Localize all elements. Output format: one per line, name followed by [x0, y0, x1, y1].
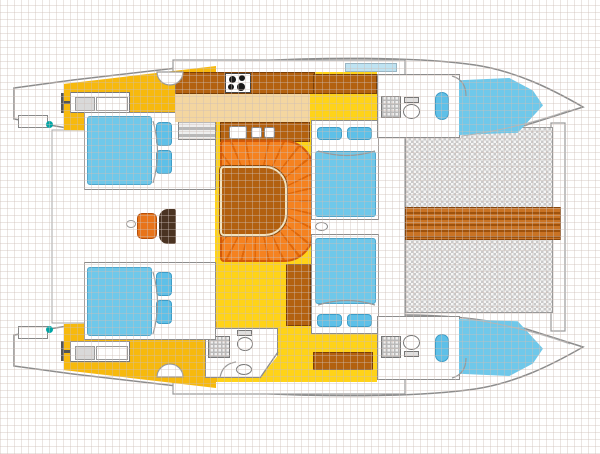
- stove-icon: [225, 73, 251, 93]
- toilet-icon-port-tank: [404, 97, 419, 103]
- shower-pan-icon-port: [381, 96, 401, 118]
- port-mid-cabin-pillow-1: [317, 127, 342, 140]
- stove-burner-3: [228, 84, 234, 90]
- starboard-mid-cabin-mattress: [315, 238, 376, 304]
- coachroof-window-strip: [345, 63, 397, 72]
- engine-hatch-starboard-panel-b: [96, 346, 128, 360]
- engine-hatch-starboard-panel-a: [75, 346, 95, 360]
- galley-sink-small-1: [251, 127, 262, 138]
- shower-pan-icon-starboard: [381, 336, 401, 358]
- starboard-mid-cabin-pillow-1: [317, 314, 342, 327]
- saloon-cabinet: [286, 264, 311, 326]
- cleat-dot-port: [46, 121, 53, 128]
- galley-sideboard: [313, 74, 377, 94]
- engine-hatch-port-panel-a: [75, 97, 95, 111]
- saloon-table: [220, 166, 287, 236]
- toilet-icon-starboard-tank: [404, 351, 419, 357]
- port-aft-cabin-mattress: [87, 116, 152, 185]
- toilet-icon-aft: [237, 337, 253, 351]
- starboard-aft-cabin-pillow-2: [156, 300, 172, 324]
- port-aft-cabin-pillow-2: [156, 150, 172, 174]
- port-aft-cabin-pillow-1: [156, 122, 172, 146]
- basin-icon-aft: [236, 364, 252, 375]
- toilet-icon-starboard: [403, 335, 420, 350]
- toilet-icon-aft-tank: [237, 330, 252, 336]
- vanity-sink-starboard: [435, 334, 449, 362]
- transom-step-starboard: [18, 326, 48, 339]
- starboard-aft-cabin-pillow-1: [156, 272, 172, 296]
- stove-burner-1: [229, 76, 236, 83]
- vanity-sink-port: [435, 92, 449, 120]
- nav-console: [159, 209, 176, 244]
- sliding-door-handle: [315, 222, 328, 231]
- toilet-icon-port: [403, 104, 420, 119]
- cockpit-door-handle: [126, 220, 136, 228]
- starboard-aft-cabin-mattress: [87, 267, 152, 336]
- starboard-bow-berth: [459, 319, 543, 376]
- port-mid-cabin-pillow-2: [347, 127, 372, 140]
- galley-sink-small-2: [264, 127, 275, 138]
- saloon-step-landing: [313, 352, 373, 370]
- galley-walkway: [175, 94, 310, 122]
- boat-floor-plan: [0, 0, 600, 454]
- stove-burner-4: [237, 83, 245, 91]
- foredeck-walkway-planks: [405, 207, 561, 240]
- stove-burner-2: [239, 75, 245, 81]
- engine-hatch-port-panel-b: [96, 97, 128, 111]
- nav-seat: [137, 213, 157, 239]
- port-mid-cabin-mattress: [315, 151, 376, 217]
- starboard-mid-cabin-pillow-2: [347, 314, 372, 327]
- engine-hatch-starboard: [70, 341, 130, 362]
- engine-hatch-port: [70, 92, 130, 113]
- cleat-dot-starboard: [46, 326, 53, 333]
- galley-sink-large: [229, 126, 247, 139]
- transom-step-port: [18, 115, 48, 128]
